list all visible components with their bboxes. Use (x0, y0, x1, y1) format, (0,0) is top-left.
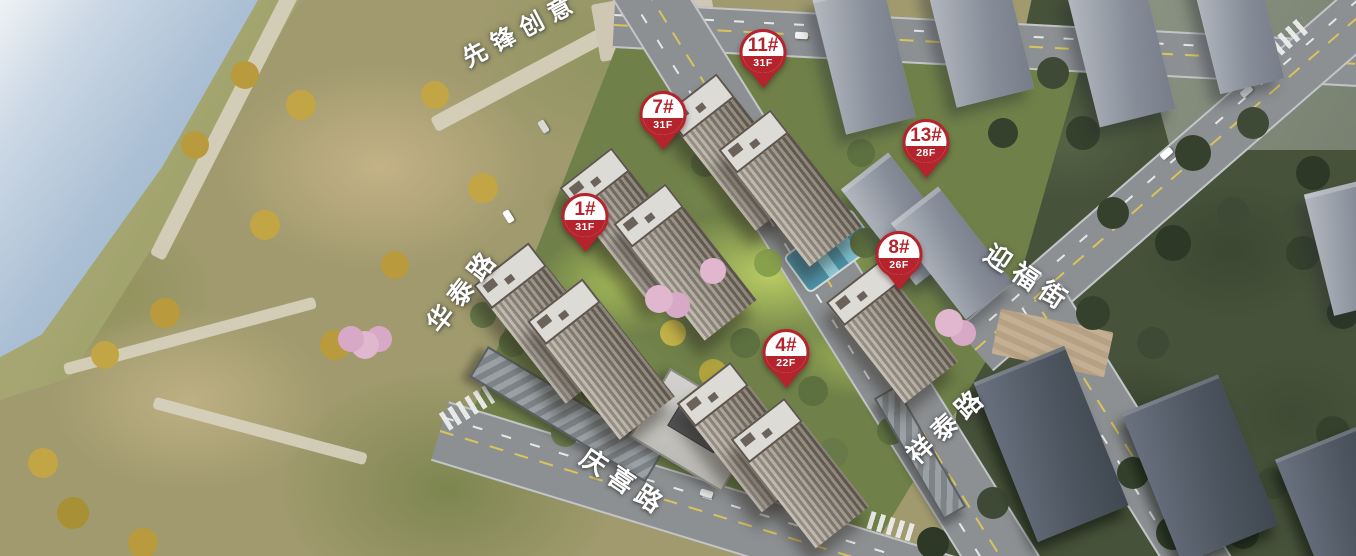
pin-building-number: 13# (906, 122, 947, 146)
pin-circle: 11# 31F (740, 29, 787, 76)
car (502, 209, 515, 224)
pin-floor-count: 26F (879, 258, 920, 275)
pin-circle: 4# 22F (763, 329, 810, 376)
car (795, 32, 808, 40)
pin-circle: 7# 31F (640, 91, 687, 138)
pin-circle: 8# 26F (876, 231, 923, 278)
pin-tail-icon (573, 237, 597, 252)
pin-tail-icon (651, 135, 675, 150)
pin-circle: 1# 31F (562, 193, 609, 240)
pin-building-number: 11# (743, 32, 784, 56)
pin-building-number: 1# (565, 196, 606, 220)
pin-floor-count: 22F (766, 356, 807, 373)
pin-floor-count: 31F (565, 220, 606, 237)
building-pin-13[interactable]: 13# 28F (903, 119, 950, 178)
building-pin-8[interactable]: 8# 26F (876, 231, 923, 290)
building-pin-7[interactable]: 7# 31F (640, 91, 687, 150)
pin-tail-icon (887, 275, 911, 290)
pin-tail-icon (914, 163, 938, 178)
pin-building-number: 7# (643, 94, 684, 118)
building-pin-11[interactable]: 11# 31F (740, 29, 787, 88)
blossom-trees (0, 0, 26, 26)
pin-building-number: 4# (766, 332, 807, 356)
pin-building-number: 8# (879, 234, 920, 258)
park-path (152, 397, 368, 466)
pin-floor-count: 28F (906, 146, 947, 163)
pin-circle: 13# 28F (903, 119, 950, 166)
pin-floor-count: 31F (743, 56, 784, 73)
building-pin-1[interactable]: 1# 31F (562, 193, 609, 252)
pin-tail-icon (751, 73, 775, 88)
pin-tail-icon (774, 373, 798, 388)
pin-floor-count: 31F (643, 118, 684, 135)
car (537, 119, 550, 134)
building-pin-4[interactable]: 4# 22F (763, 329, 810, 388)
aerial-site-plan: 先锋创意 华泰路 迎福街 祥泰路 庆喜路 1# 31F 7# 31F 11# 3… (0, 0, 1356, 556)
